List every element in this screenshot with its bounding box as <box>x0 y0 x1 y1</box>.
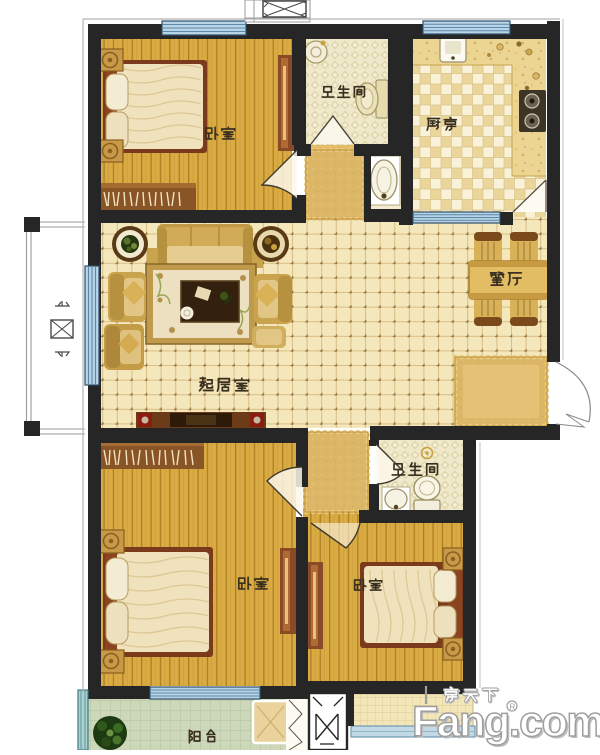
svg-text:R: R <box>510 703 516 712</box>
svg-text:Fang.com: Fang.com <box>412 698 600 746</box>
